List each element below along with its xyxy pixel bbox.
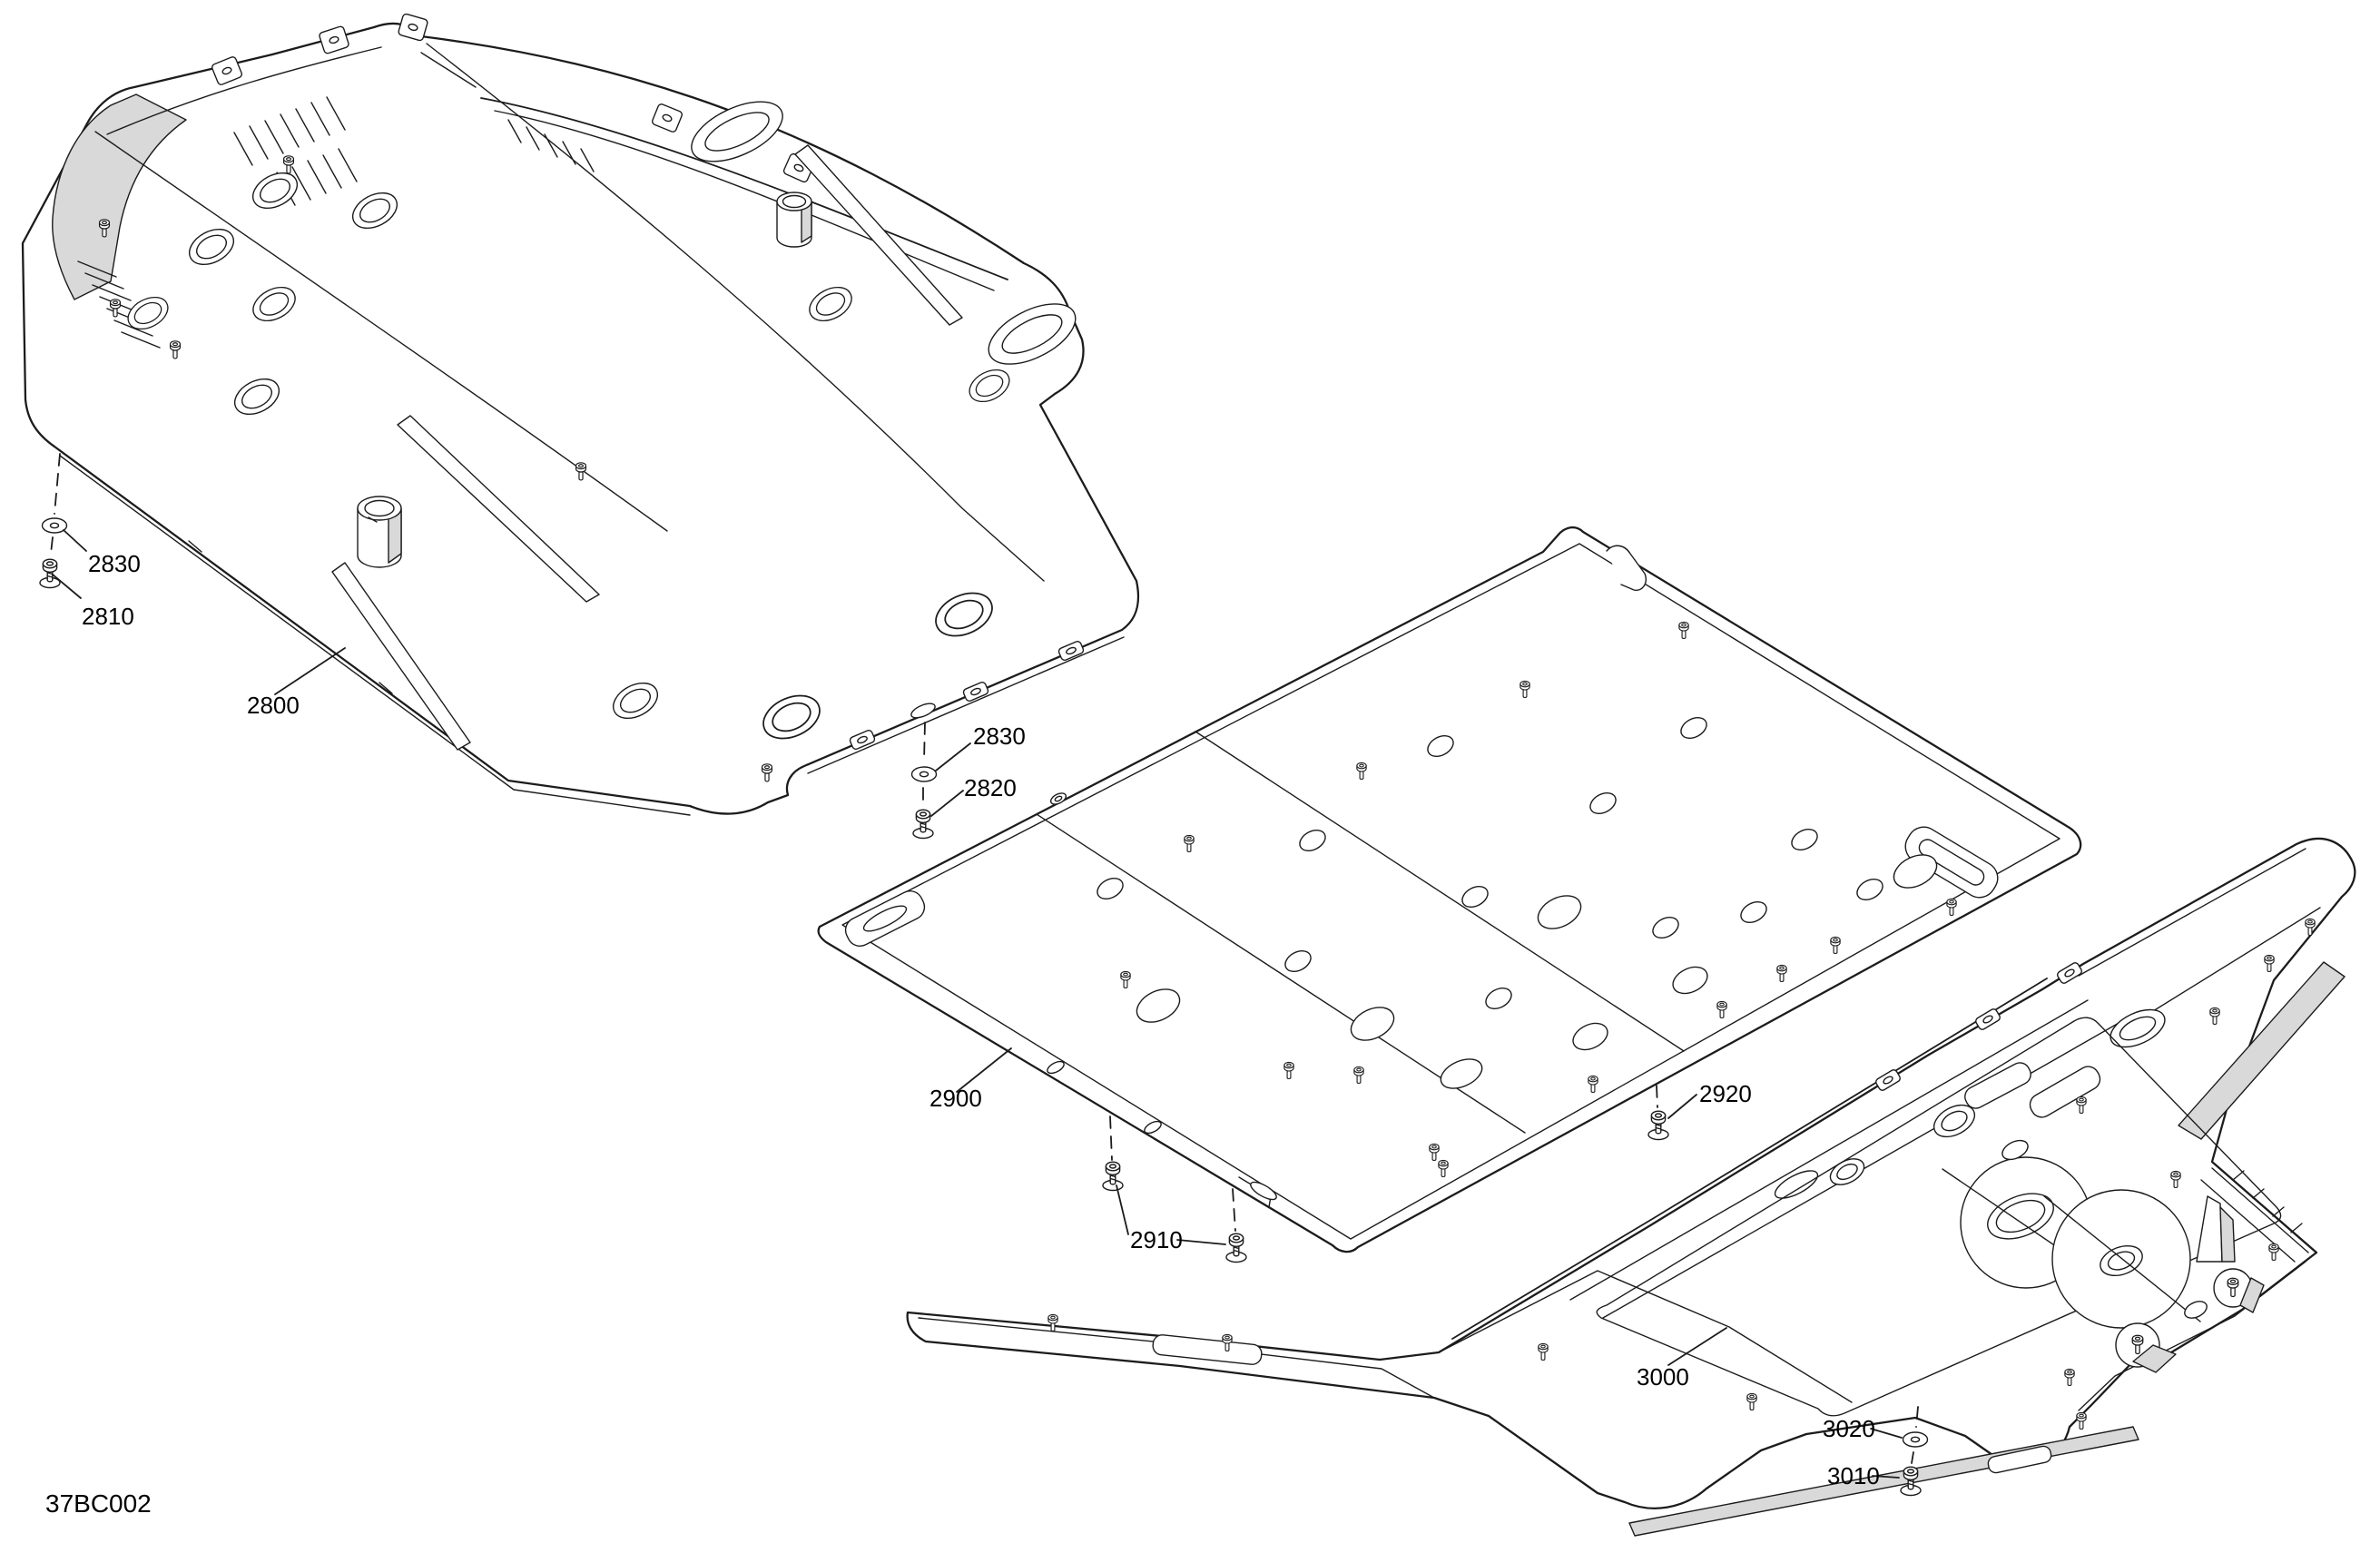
callout-center-washer: 2830 — [973, 722, 1026, 750]
front-skid-plate — [23, 14, 1138, 815]
diagram-code: 37BC002 — [45, 1489, 152, 1518]
callout-rear-washer: 3020 — [1823, 1415, 1875, 1442]
screw-icon — [1103, 1162, 1123, 1190]
parts-diagram-page: 2830 2810 2800 2830 2820 2900 2910 2920 … — [0, 0, 2380, 1543]
callout-rear-screw: 3010 — [1827, 1462, 1880, 1489]
screw-icon — [1226, 1233, 1246, 1262]
screw-icon — [1648, 1111, 1668, 1139]
callout-front-screw: 2810 — [82, 603, 134, 630]
screw-icon — [913, 810, 933, 838]
callout-center-rear-screw: 2920 — [1699, 1080, 1752, 1107]
callout-rear-plate: 3000 — [1637, 1363, 1689, 1391]
center-washer-assembly — [912, 722, 937, 839]
callout-front-plate: 2800 — [247, 692, 300, 719]
center-rear-screw-assembly — [1648, 1086, 1668, 1140]
exploded-parts-diagram: 2830 2810 2800 2830 2820 2900 2910 2920 … — [0, 0, 2380, 1543]
screw-icon — [40, 559, 60, 587]
washer-icon — [912, 767, 937, 781]
callout-center-screw: 2820 — [964, 774, 1017, 801]
rolled-sleeve — [358, 496, 401, 567]
front-washer-assembly — [40, 454, 67, 588]
callout-center-plate: 2900 — [929, 1085, 982, 1112]
rolled-sleeve — [777, 192, 811, 247]
callout-front-washer: 2830 — [88, 550, 141, 577]
washer-icon — [1903, 1432, 1928, 1447]
callout-center-front-screw: 2910 — [1130, 1226, 1183, 1253]
